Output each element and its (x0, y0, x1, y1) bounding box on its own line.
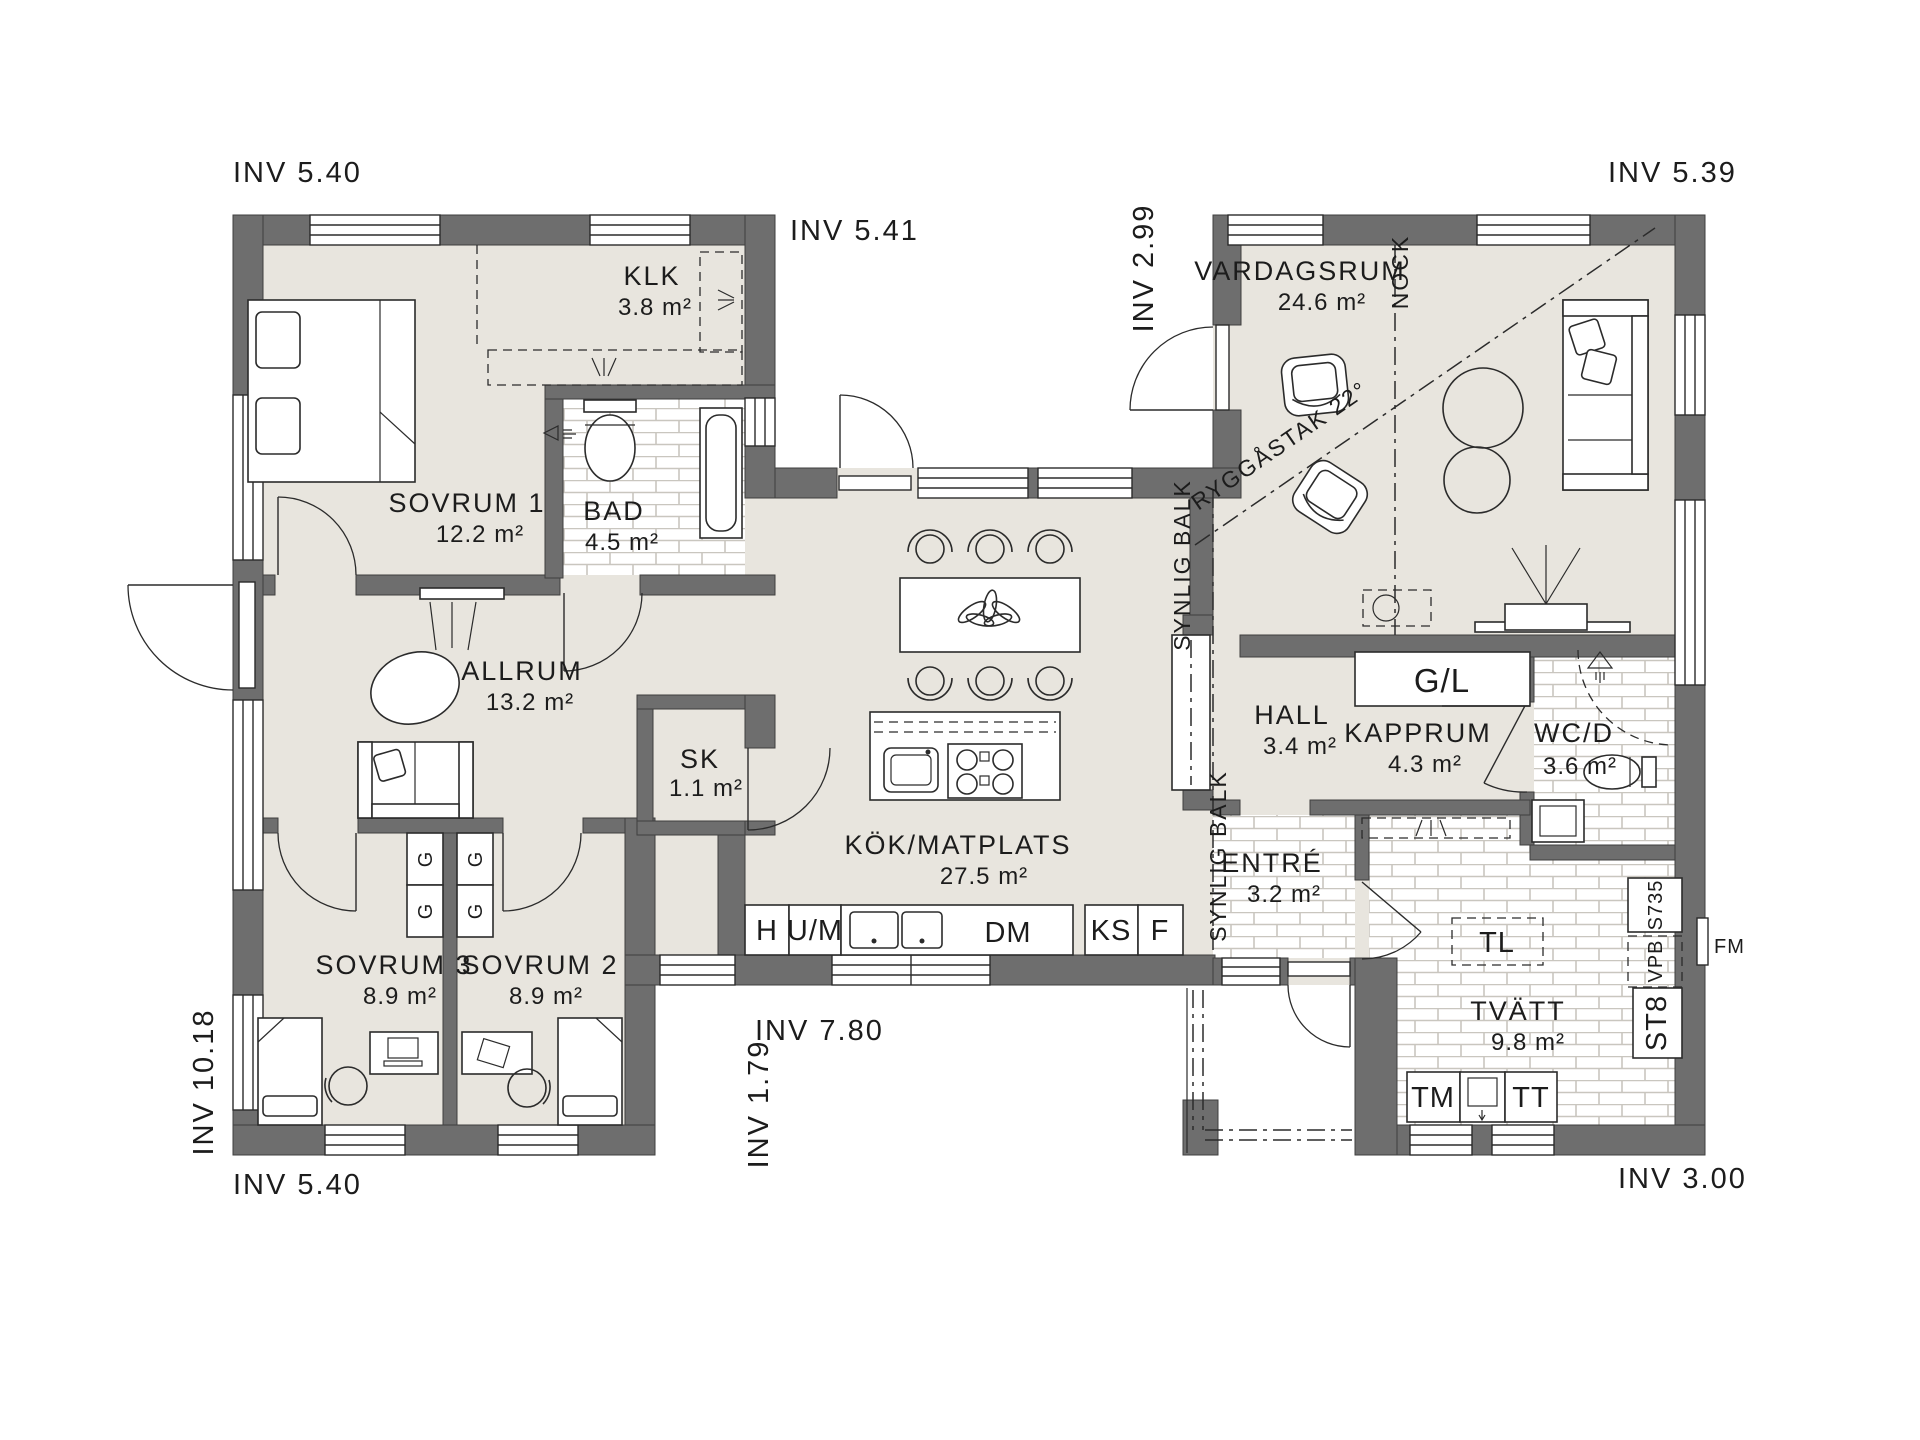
window (498, 1125, 578, 1155)
room-label-kok: KÖK/MATPLATS (844, 830, 1071, 860)
dim-connector-bottom: INV 1.79 (743, 1040, 775, 1169)
sofa-vardagsrum (1563, 300, 1648, 490)
room-label-bad: BAD (583, 496, 645, 526)
label-g: G (465, 903, 487, 920)
bed-single (258, 1018, 322, 1125)
window (918, 468, 1028, 498)
room-area-kapprum: 4.3 m² (1388, 751, 1462, 778)
label-ks: KS (1091, 915, 1132, 947)
window (233, 700, 263, 890)
room-area-hall: 3.4 m² (1263, 733, 1337, 760)
room-area-wcd: 3.6 m² (1543, 753, 1617, 780)
bed-double (248, 300, 415, 482)
label-fm: FM (1714, 936, 1745, 958)
room-area-sk: 1.1 m² (669, 775, 743, 802)
label-vpb: VPB (1645, 939, 1667, 982)
room-label-entre: ENTRÉ (1221, 848, 1323, 878)
label-dm: DM (984, 917, 1031, 949)
room-label-sovrum2: SOVRUM 2 (461, 950, 618, 980)
room-label-klk: KLK (623, 261, 680, 291)
window (1038, 468, 1132, 498)
room-label-sk: SK (680, 744, 720, 774)
label-gl: G/L (1414, 662, 1470, 699)
fm-niche (1697, 918, 1708, 965)
sink-drain (872, 939, 877, 944)
label-f: F (1151, 915, 1170, 947)
dim-bottom-left: INV 5.40 (233, 1169, 362, 1201)
label-g: G (415, 851, 437, 868)
dim-bottom-right: INV 3.00 (1618, 1163, 1747, 1195)
room-area-kok: 27.5 m² (940, 863, 1028, 890)
window (1222, 958, 1280, 985)
room-area-klk: 3.8 m² (618, 294, 692, 321)
window (1228, 215, 1323, 245)
room-label-hall: HALL (1254, 700, 1330, 730)
room-area-vardagsrum: 24.6 m² (1278, 289, 1366, 316)
room-label-kapprum: KAPPRUM (1344, 718, 1492, 748)
window (310, 215, 440, 245)
room-area-sovrum2: 8.9 m² (509, 983, 583, 1010)
toilet (584, 400, 636, 481)
room-area-bad: 4.5 m² (585, 529, 659, 556)
sofa-allrum (358, 742, 473, 818)
dim-left: INV 10.18 (188, 1009, 220, 1156)
room-label-allrum: ALLRUM (461, 656, 583, 686)
room-label-tvatt: TVÄTT (1470, 996, 1566, 1026)
window (832, 955, 990, 985)
dim-top-middle: INV 5.41 (790, 215, 919, 247)
room-label-wcd: WC/D (1534, 718, 1614, 748)
dining-table (900, 578, 1080, 652)
dim-top-right: INV 5.39 (1608, 157, 1737, 189)
label-tm: TM (1411, 1082, 1455, 1114)
window (590, 215, 690, 245)
kitchen-island (870, 712, 1060, 800)
sink-drain (920, 939, 925, 944)
label-g: G (415, 903, 437, 920)
label-st8: ST8 (1641, 995, 1673, 1051)
floor-plan-page: INV 5.40 INV 5.41 INV 2.99 INV 5.39 INV … (0, 0, 1920, 1440)
label-tl: TL (1479, 927, 1515, 959)
window (1477, 215, 1590, 245)
label-h: H (756, 915, 778, 947)
room-label-sovrum3: SOVRUM 3 (315, 950, 472, 980)
label-s735: S735 (1645, 880, 1667, 931)
window (1675, 315, 1705, 415)
room-area-entre: 3.2 m² (1247, 881, 1321, 908)
floor-plan-drawing: INV 5.40 INV 5.41 INV 2.99 INV 5.39 INV … (0, 0, 1920, 1440)
room-area-sovrum1: 12.2 m² (436, 521, 524, 548)
window (1410, 1125, 1472, 1155)
window (1492, 1125, 1554, 1155)
window (1675, 500, 1705, 685)
bathtub (700, 408, 742, 538)
room-area-sovrum3: 8.9 m² (363, 983, 437, 1010)
bed-single (558, 1018, 622, 1125)
room-label-vardagsrum: VARDAGSRUM (1194, 256, 1406, 286)
window (325, 1125, 405, 1155)
label-tt: TT (1512, 1082, 1549, 1114)
room-label-sovrum1: SOVRUM 1 (388, 488, 545, 518)
label-um: U/M (787, 915, 843, 947)
room-area-allrum: 13.2 m² (486, 689, 574, 716)
label-g: G (465, 851, 487, 868)
room-area-tvatt: 9.8 m² (1491, 1029, 1565, 1056)
dim-connector-top: INV 2.99 (1128, 204, 1160, 333)
window (745, 398, 775, 446)
dim-top-left: INV 5.40 (233, 157, 362, 189)
synlig-balk-label-top: SYNLIG BALK (1169, 479, 1195, 651)
window (660, 955, 735, 985)
